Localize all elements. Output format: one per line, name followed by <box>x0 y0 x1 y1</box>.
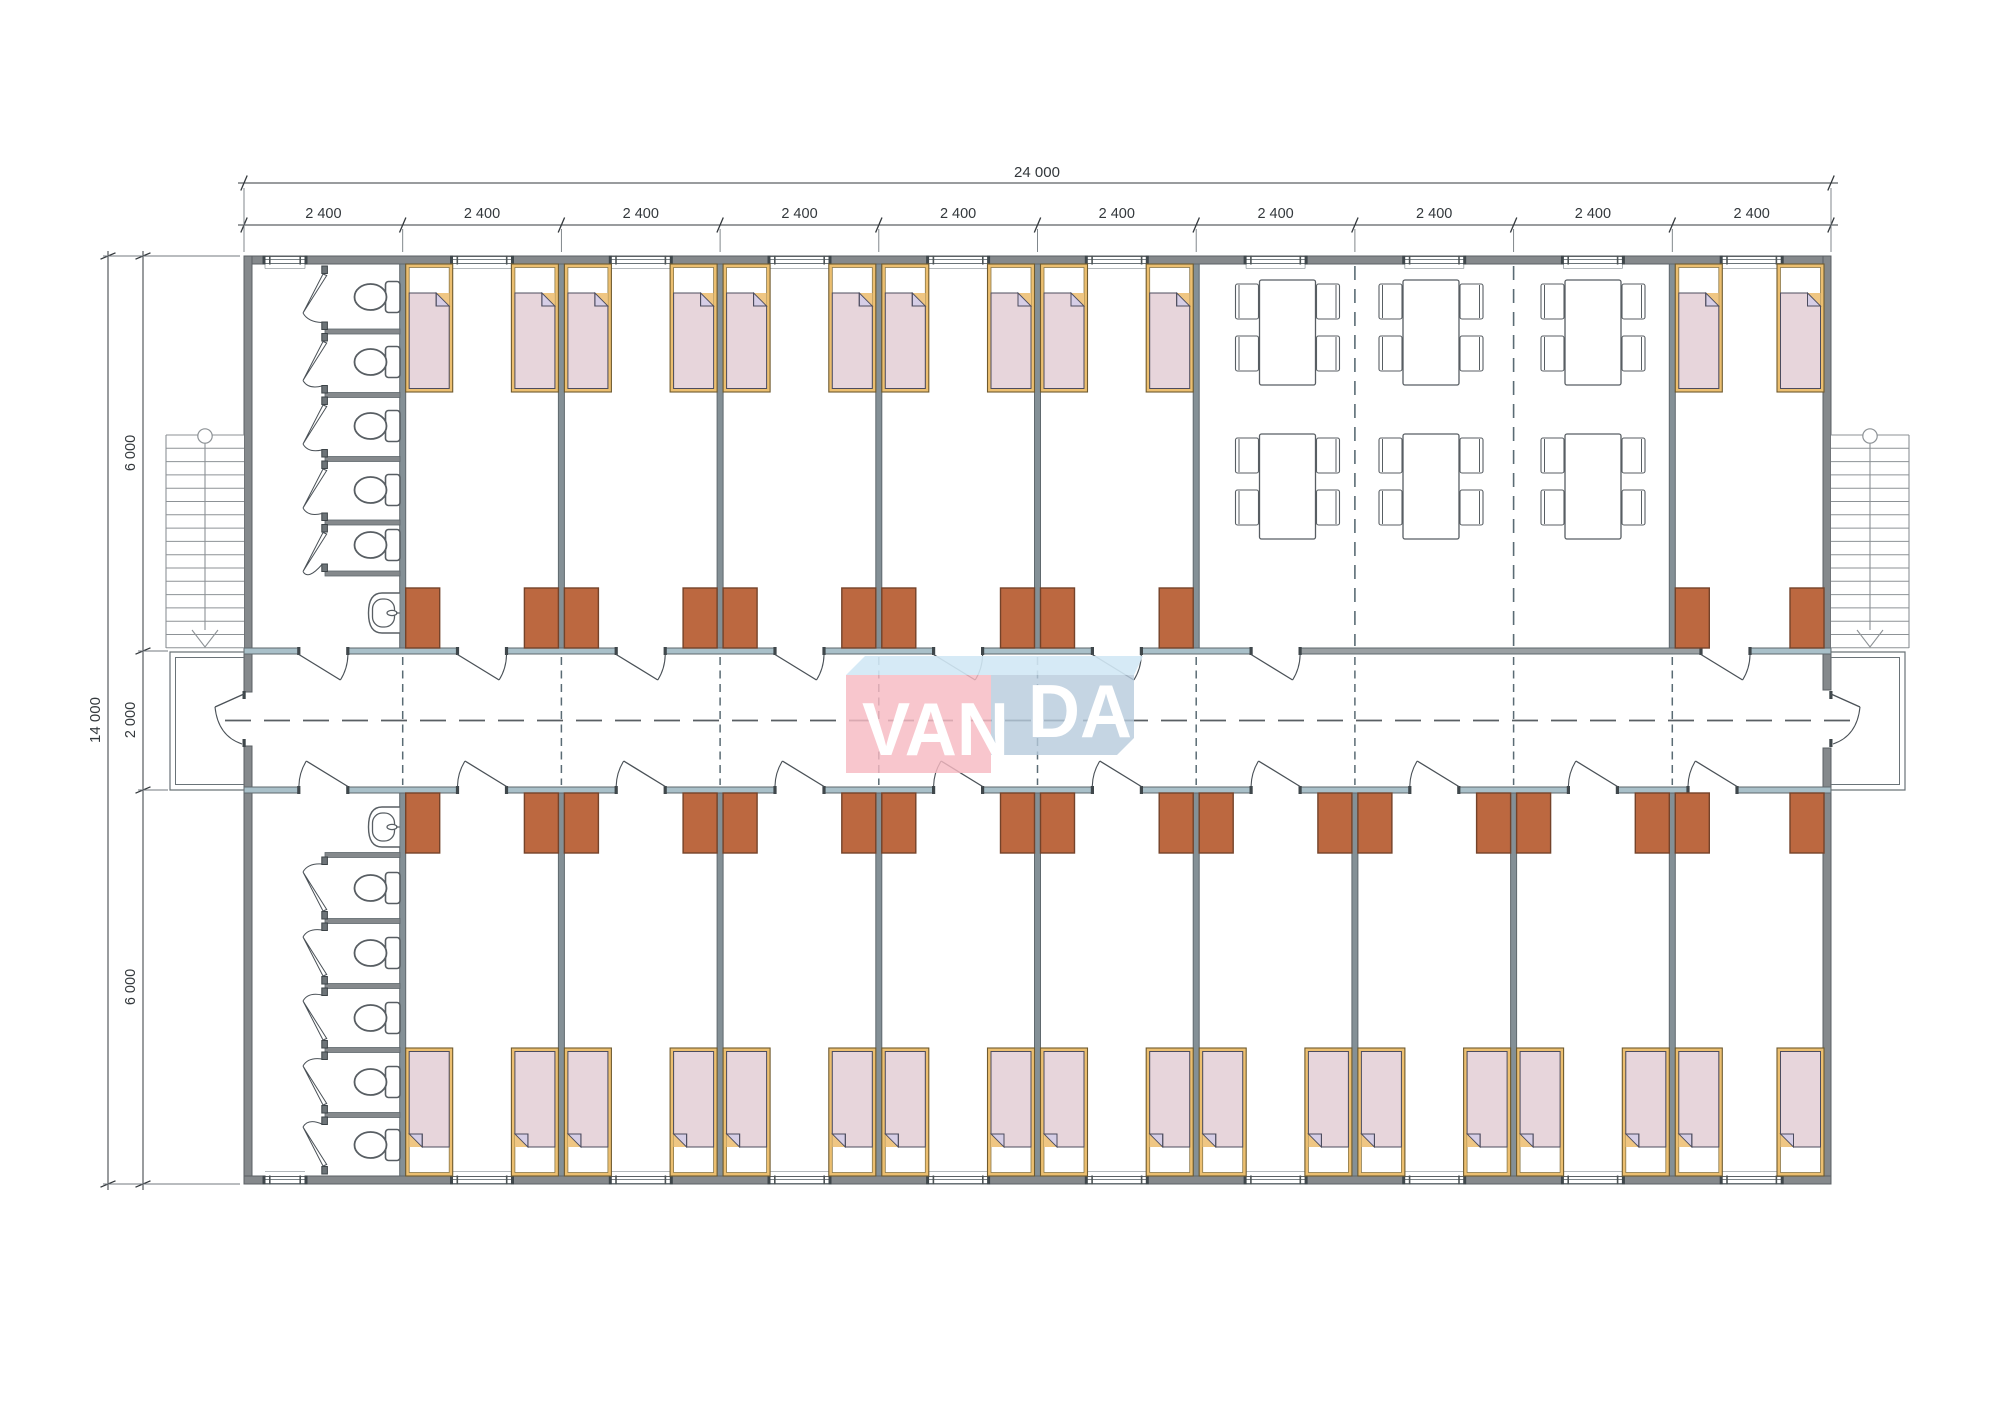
svg-text:2 400: 2 400 <box>623 206 659 222</box>
svg-text:6 000: 6 000 <box>123 435 139 471</box>
svg-text:14 000: 14 000 <box>87 697 104 743</box>
svg-text:2 400: 2 400 <box>781 206 817 222</box>
svg-text:2 400: 2 400 <box>1575 206 1611 222</box>
svg-text:2 400: 2 400 <box>1099 206 1135 222</box>
svg-text:2 400: 2 400 <box>940 206 976 222</box>
svg-text:2 400: 2 400 <box>1416 206 1452 222</box>
svg-text:24 000: 24 000 <box>1014 164 1060 181</box>
svg-text:VAN: VAN <box>862 687 1009 771</box>
svg-text:DA: DA <box>1028 669 1132 753</box>
svg-text:2 000: 2 000 <box>123 702 139 738</box>
svg-text:6 000: 6 000 <box>123 969 139 1005</box>
svg-text:2 400: 2 400 <box>1257 206 1293 222</box>
svg-text:2 400: 2 400 <box>305 206 341 222</box>
svg-text:2 400: 2 400 <box>464 206 500 222</box>
svg-text:2 400: 2 400 <box>1734 206 1770 222</box>
